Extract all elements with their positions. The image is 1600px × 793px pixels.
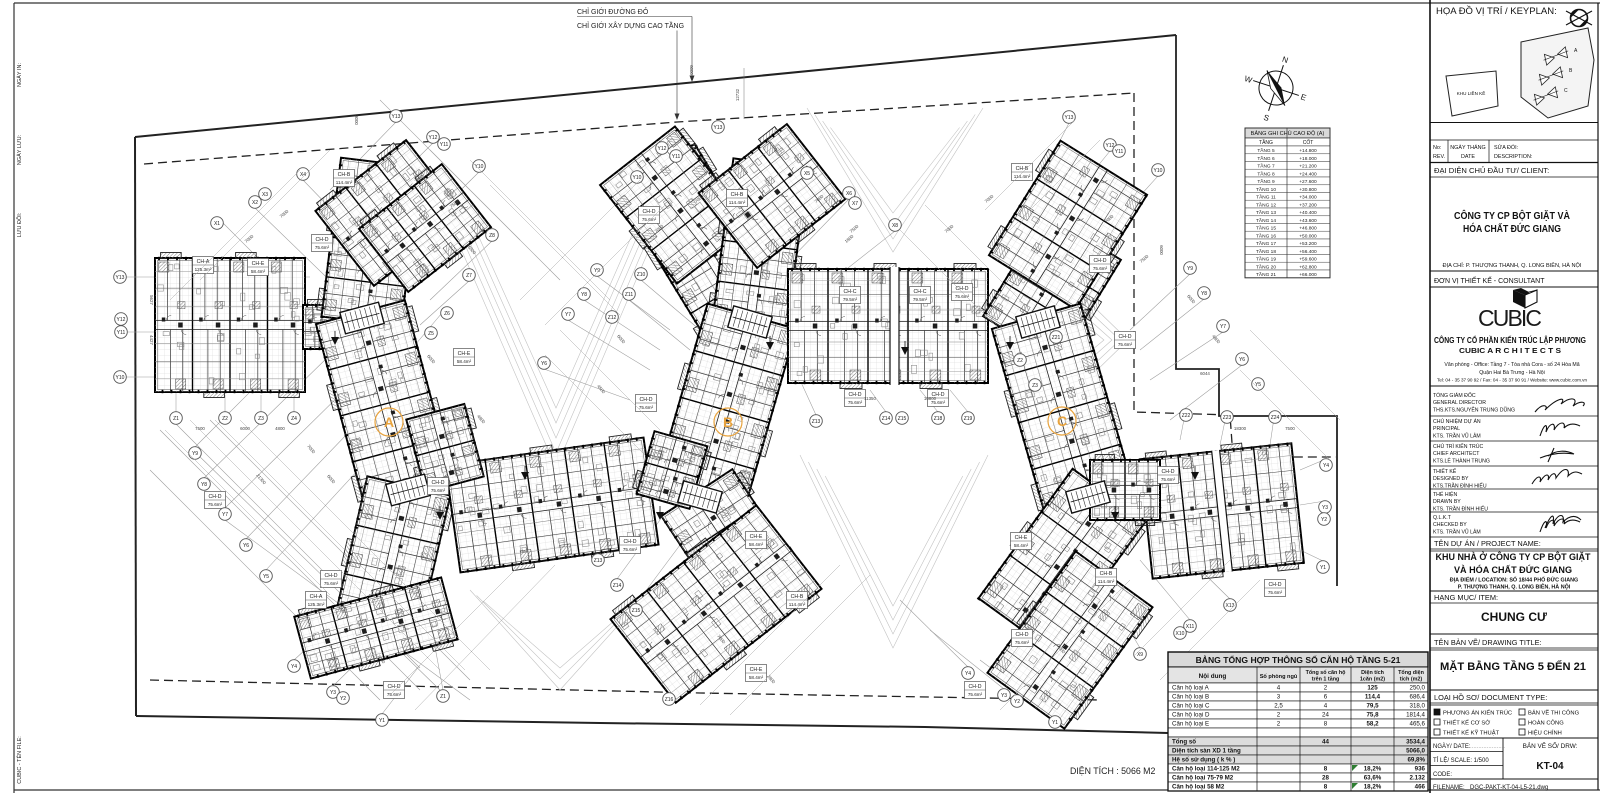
svg-text:3: 3 — [1277, 693, 1281, 700]
svg-text:X10: X10 — [1176, 631, 1185, 637]
svg-text:8: 8 — [1324, 765, 1328, 772]
svg-text:Y7: Y7 — [1220, 324, 1226, 330]
svg-text:Số phòng ngủ: Số phòng ngủ — [1260, 673, 1298, 680]
svg-text:75.6m²: 75.6m² — [642, 217, 657, 222]
svg-text:CH-D: CH-D — [956, 286, 969, 292]
svg-text:SỬA ĐỔI:: SỬA ĐỔI: — [1494, 144, 1518, 151]
svg-text:Y3: Y3 — [1001, 693, 1007, 699]
svg-text:75.6m²: 75.6m² — [623, 547, 638, 552]
svg-text:Y11: Y11 — [117, 330, 126, 336]
svg-text:Z12: Z12 — [608, 315, 617, 321]
svg-text:TẦNG 13: TẦNG 13 — [1256, 209, 1276, 216]
svg-text:HOÀN CÔNG: HOÀN CÔNG — [1528, 720, 1564, 727]
svg-text:8: 8 — [1324, 783, 1328, 790]
svg-text:Diện tích: Diện tích — [1361, 670, 1384, 676]
svg-text:Z14: Z14 — [613, 583, 622, 589]
svg-text:Z2: Z2 — [222, 416, 228, 422]
svg-text:CH-A: CH-A — [310, 594, 323, 600]
svg-text:Y1: Y1 — [1320, 565, 1326, 571]
svg-text:CH-D: CH-D — [1162, 469, 1175, 475]
svg-text:KTS. TRẦN ĐÌNH HIẾU: KTS. TRẦN ĐÌNH HIẾU — [1433, 505, 1488, 512]
svg-text:TẦNG 12: TẦNG 12 — [1256, 201, 1276, 208]
svg-text:TẦNG 7: TẦNG 7 — [1257, 163, 1275, 170]
svg-text:Y2: Y2 — [1321, 517, 1327, 523]
svg-text:TẦNG 11: TẦNG 11 — [1256, 194, 1276, 201]
svg-text:CH-D: CH-D — [1269, 582, 1282, 588]
svg-text:PHƯƠNG ÁN KIẾN TRÚC: PHƯƠNG ÁN KIẾN TRÚC — [1443, 710, 1512, 717]
svg-text:CH-D: CH-D — [1016, 632, 1029, 638]
svg-text:2: 2 — [1277, 720, 1281, 727]
svg-text:PRINCIPAL: PRINCIPAL — [1433, 426, 1460, 432]
svg-text:Y8: Y8 — [201, 482, 207, 488]
svg-text:Z19: Z19 — [964, 416, 973, 422]
svg-text:18,2%: 18,2% — [1364, 783, 1382, 790]
svg-text:Y5: Y5 — [263, 574, 269, 580]
svg-text:REV.: REV. — [1433, 154, 1445, 160]
svg-text:Y5: Y5 — [1255, 382, 1261, 388]
svg-text:CH-D: CH-D — [640, 397, 653, 403]
svg-text:58,2: 58,2 — [1366, 720, 1379, 727]
svg-text:HÓA CHẤT ĐỨC GIANG: HÓA CHẤT ĐỨC GIANG — [1463, 222, 1561, 235]
svg-text:Văn phòng - Office: Tầng 7 - T: Văn phòng - Office: Tầng 7 - Tòa nhà Cor… — [1444, 362, 1579, 368]
svg-text:114.4m²: 114.4m² — [789, 602, 806, 607]
svg-text:+50.000: +50.000 — [1299, 233, 1317, 239]
svg-text:Z2: Z2 — [1017, 358, 1023, 364]
svg-text:X5: X5 — [804, 171, 810, 177]
svg-text:+21.200: +21.200 — [1299, 164, 1317, 170]
svg-text:+56.400: +56.400 — [1299, 249, 1317, 255]
svg-text:114.4m²: 114.4m² — [1098, 579, 1115, 584]
svg-text:DESIGNED BY: DESIGNED BY — [1433, 476, 1469, 482]
svg-text:Z6: Z6 — [444, 311, 450, 317]
svg-text:ĐỊA ĐIỂM / LOCATION: SỐ 18/44: ĐỊA ĐIỂM / LOCATION: SỐ 18/44 PHỐ ĐỨC GI… — [1450, 577, 1578, 584]
svg-text:+46.800: +46.800 — [1299, 226, 1317, 232]
svg-text:Z3: Z3 — [258, 416, 264, 422]
svg-text:28: 28 — [1322, 774, 1329, 781]
svg-text:Y13: Y13 — [1065, 115, 1074, 121]
svg-text:trên 1 tầng: trên 1 tầng — [1312, 677, 1340, 683]
svg-text:DIỆN TÍCH : 5066 M2: DIỆN TÍCH : 5066 M2 — [1070, 766, 1155, 776]
svg-text:CÔNG TY CỔ PHẦN KIẾN TRÚC LẬP: CÔNG TY CỔ PHẦN KIẾN TRÚC LẬP PHƯƠNG — [1434, 334, 1586, 345]
svg-text:+14.800: +14.800 — [1299, 148, 1317, 154]
svg-text:DESCRIPTION:: DESCRIPTION: — [1494, 154, 1532, 160]
svg-text:No:: No: — [1433, 145, 1441, 151]
svg-text:CH-B: CH-B — [731, 192, 744, 198]
svg-text:CH-E: CH-E — [1015, 535, 1028, 541]
svg-text:VÀ HÓA CHẤT ĐỨC GIANG: VÀ HÓA CHẤT ĐỨC GIANG — [1454, 564, 1572, 576]
svg-text:125.3m²: 125.3m² — [195, 267, 212, 272]
svg-text:CH-E: CH-E — [750, 667, 763, 673]
svg-text:69,8%: 69,8% — [1407, 756, 1425, 763]
svg-text:75.6m²: 75.6m² — [955, 294, 970, 299]
svg-text:Tổng số: Tổng số — [1172, 738, 1196, 745]
svg-text:TÊN BẢN VẼ/ DRAWING TITLE:: TÊN BẢN VẼ/ DRAWING TITLE: — [1434, 638, 1542, 647]
svg-text:KTS.LÊ THÀNH TRUNG: KTS.LÊ THÀNH TRUNG — [1433, 456, 1490, 464]
svg-text:Căn hộ loại A: Căn hộ loại A — [1172, 684, 1210, 691]
svg-text:Z10: Z10 — [637, 272, 646, 278]
svg-text:75.6m²: 75.6m² — [968, 692, 983, 697]
svg-text:NGÀY THÁNG: NGÀY THÁNG — [1450, 144, 1485, 151]
svg-text:DRAWN BY: DRAWN BY — [1433, 499, 1461, 505]
svg-text:X2: X2 — [252, 200, 258, 206]
svg-text:CHỦ NHIỆM DỰ ÁN: CHỦ NHIỆM DỰ ÁN — [1433, 417, 1481, 425]
svg-text:CỐT: CỐT — [1303, 139, 1314, 146]
svg-text:TẦNG 17: TẦNG 17 — [1256, 240, 1276, 247]
svg-text:X6: X6 — [846, 191, 852, 197]
svg-text:BẢN VẼ THI CÔNG: BẢN VẼ THI CÔNG — [1528, 710, 1580, 717]
svg-text:3534,4: 3534,4 — [1406, 738, 1425, 745]
svg-text:5627: 5627 — [149, 295, 154, 305]
svg-text:Y4: Y4 — [291, 664, 297, 670]
svg-text:Căn hộ loại B: Căn hộ loại B — [1172, 693, 1209, 700]
svg-text:+62.800: +62.800 — [1299, 264, 1317, 270]
svg-text:CH-B: CH-B — [791, 594, 804, 600]
svg-text:75.6m²: 75.6m² — [431, 488, 446, 493]
svg-text:Y13: Y13 — [392, 114, 401, 120]
svg-text:6000: 6000 — [689, 65, 694, 75]
svg-text:Y10: Y10 — [1154, 168, 1163, 174]
svg-text:125.3m²: 125.3m² — [308, 602, 325, 607]
svg-text:Y8: Y8 — [1201, 291, 1207, 297]
svg-text:CH-D: CH-D — [209, 494, 222, 500]
svg-text:THỂ HIỆN: THỂ HIỆN — [1433, 490, 1457, 498]
svg-text:TẦNG 9: TẦNG 9 — [1257, 178, 1275, 185]
svg-text:+43.600: +43.600 — [1299, 218, 1317, 224]
svg-text:Z1: Z1 — [440, 694, 446, 700]
svg-text:Z15: Z15 — [898, 416, 907, 422]
svg-text:CH-D: CH-D — [643, 209, 656, 215]
svg-text:NGÀY IN:: NGÀY IN: — [16, 63, 23, 88]
svg-text:X1: X1 — [214, 221, 220, 227]
svg-text:Y7: Y7 — [565, 312, 571, 318]
svg-text:Y3: Y3 — [1322, 505, 1328, 511]
svg-text:+40.400: +40.400 — [1299, 210, 1317, 216]
svg-text:Căn hộ loại 75-79 M2: Căn hộ loại 75-79 M2 — [1172, 774, 1234, 781]
svg-text:Y6: Y6 — [1239, 357, 1245, 363]
svg-text:Y11: Y11 — [672, 154, 681, 160]
svg-text:Y10: Y10 — [633, 175, 642, 181]
svg-text:2,5: 2,5 — [1274, 702, 1283, 709]
svg-text:+53.200: +53.200 — [1299, 241, 1317, 247]
svg-text:Y4: Y4 — [965, 671, 971, 677]
svg-text:X9: X9 — [1137, 652, 1143, 658]
svg-text:125: 125 — [1367, 684, 1378, 691]
svg-text:79.5m²: 79.5m² — [843, 297, 858, 302]
svg-text:CH-D: CH-D — [1119, 334, 1132, 340]
svg-text:KHU NHÀ Ở CÔNG TY CP BỘT GIẶT: KHU NHÀ Ở CÔNG TY CP BỘT GIẶT — [1436, 551, 1591, 563]
svg-text:Tổng diện: Tổng diện — [1398, 669, 1424, 676]
svg-text:10800: 10800 — [924, 396, 937, 401]
svg-text:Z21: Z21 — [1052, 335, 1061, 341]
svg-text:75.6m²: 75.6m² — [639, 405, 654, 410]
svg-text:Z22: Z22 — [1182, 413, 1191, 419]
svg-text:Căn hộ loại 114-125 M2: Căn hộ loại 114-125 M2 — [1172, 765, 1240, 772]
svg-text:+30.800: +30.800 — [1299, 187, 1317, 193]
svg-text:Y8: Y8 — [581, 292, 587, 298]
svg-text:75.6m²: 75.6m² — [315, 245, 330, 250]
svg-text:Tel: 04 - 35 37 90 92 / Fax:: Tel: 04 - 35 37 90 92 / Fax: 04 - 35 37 … — [1437, 378, 1588, 383]
svg-text:X11: X11 — [1186, 624, 1195, 630]
svg-text:HIỆU CHỈNH: HIỆU CHỈNH — [1528, 729, 1562, 737]
svg-text:CH-D: CH-D — [432, 480, 445, 486]
svg-text:466: 466 — [1415, 783, 1426, 790]
svg-text:Z13: Z13 — [812, 419, 821, 425]
svg-text:CH-D: CH-D — [316, 237, 329, 243]
svg-text:HỌA ĐỒ VỊ TRÍ / KEYPLAN:: HỌA ĐỒ VỊ TRÍ / KEYPLAN: — [1436, 5, 1557, 17]
svg-text:X13: X13 — [1226, 603, 1235, 609]
svg-text:CH-D: CH-D — [969, 684, 982, 690]
svg-text:Y7: Y7 — [222, 512, 228, 518]
svg-text:MẶT BẰNG TẦNG 5 ĐẾN 21: MẶT BẰNG TẦNG 5 ĐẾN 21 — [1440, 660, 1587, 673]
svg-text:8: 8 — [1324, 720, 1328, 727]
svg-text:TÊN DỰ ÁN / PROJECT NAME:: TÊN DỰ ÁN / PROJECT NAME: — [1434, 539, 1541, 548]
svg-text:.....................: ..................... — [1470, 744, 1505, 750]
svg-text:KTS. TRẦN VŨ LÂM: KTS. TRẦN VŨ LÂM — [1433, 432, 1481, 439]
svg-text:KT-04: KT-04 — [1536, 761, 1564, 772]
svg-text:C: C — [1564, 88, 1568, 94]
svg-text:CH-E: CH-E — [750, 534, 763, 540]
svg-text:Z15: Z15 — [632, 608, 641, 614]
svg-text:CH-E: CH-E — [252, 261, 265, 267]
svg-text:4800: 4800 — [275, 426, 285, 431]
svg-text:Căn hộ loại D: Căn hộ loại D — [1172, 711, 1210, 718]
svg-text:LƯU ĐỒI:: LƯU ĐỒI: — [16, 212, 23, 237]
svg-text:CUBIC A R C H I T E C T S: CUBIC A R C H I T E C T S — [1459, 346, 1561, 355]
svg-text:465,6: 465,6 — [1410, 720, 1426, 727]
svg-text:Z14: Z14 — [882, 416, 891, 422]
svg-text:6044: 6044 — [1200, 371, 1210, 376]
svg-text:936: 936 — [1415, 765, 1426, 772]
svg-text:CH-E: CH-E — [458, 351, 471, 357]
svg-text:TẦNG 16: TẦNG 16 — [1256, 232, 1276, 239]
svg-text:Y12: Y12 — [429, 135, 438, 141]
svg-text:TỔNG GIÁM ĐỐC: TỔNG GIÁM ĐỐC — [1433, 392, 1476, 399]
svg-text:CHECKED BY: CHECKED BY — [1433, 522, 1467, 528]
svg-text:Căn hộ loại 58 M2: Căn hộ loại 58 M2 — [1172, 783, 1225, 790]
svg-text:75.6m²: 75.6m² — [848, 400, 863, 405]
svg-text:NGÀY/ DATE:: NGÀY/ DATE: — [1433, 743, 1471, 750]
svg-text:63,6%: 63,6% — [1364, 774, 1382, 781]
svg-text:58.4m²: 58.4m² — [749, 675, 764, 680]
svg-text:Y9: Y9 — [192, 451, 198, 457]
svg-text:2.132: 2.132 — [1410, 774, 1426, 781]
svg-text:CODE:: CODE: — [1433, 772, 1452, 778]
svg-text:18,2%: 18,2% — [1364, 765, 1382, 772]
svg-text:1căn (m2): 1căn (m2) — [1360, 677, 1385, 683]
svg-text:6000: 6000 — [1159, 245, 1164, 255]
svg-text:+37.200: +37.200 — [1299, 202, 1317, 208]
svg-text:Quận Hai Bà Trưng - Hà Nội: Quận Hai Bà Trưng - Hà Nội — [1479, 370, 1544, 376]
svg-text:Tổng số căn hộ: Tổng số căn hộ — [1306, 669, 1347, 676]
svg-text:CUBIC - TÊN FILE:: CUBIC - TÊN FILE: — [15, 736, 23, 784]
svg-text:Căn hộ loại C: Căn hộ loại C — [1172, 702, 1210, 709]
svg-text:KTS. TRẦN VŨ LÂM: KTS. TRẦN VŨ LÂM — [1433, 528, 1481, 535]
svg-text:Y13: Y13 — [116, 275, 125, 281]
svg-text:BẢNG TỔNG HỢP THÔNG SỐ CĂN HỘ: BẢNG TỔNG HỢP THÔNG SỐ CĂN HỘ TẦNG 5-21 — [1196, 654, 1401, 665]
svg-text:TẦNG 6: TẦNG 6 — [1257, 155, 1275, 162]
svg-text:18300: 18300 — [1234, 426, 1247, 431]
svg-text:Z18: Z18 — [934, 416, 943, 422]
svg-text:+34.000: +34.000 — [1299, 195, 1317, 201]
svg-text:ĐẠI DIỆN CHỦ ĐẦU TƯ/ CLIENT:: ĐẠI DIỆN CHỦ ĐẦU TƯ/ CLIENT: — [1434, 165, 1549, 175]
svg-text:75.6m²: 75.6m² — [1093, 266, 1108, 271]
svg-text:KTS.TRẦN ĐÌNH HIẾU: KTS.TRẦN ĐÌNH HIẾU — [1433, 482, 1487, 489]
svg-text:Y11: Y11 — [440, 142, 449, 148]
svg-text:TẦNG 8: TẦNG 8 — [1257, 170, 1275, 177]
svg-text:Y12: Y12 — [658, 146, 667, 152]
svg-text:X3: X3 — [262, 192, 268, 198]
svg-text:Z3: Z3 — [1032, 383, 1038, 389]
svg-text:NGÀY LƯU:: NGÀY LƯU: — [16, 134, 23, 165]
svg-text:CH-B: CH-B — [1016, 166, 1029, 172]
svg-text:1814,4: 1814,4 — [1406, 711, 1425, 718]
svg-text:CH-D: CH-D — [388, 684, 401, 690]
svg-text:Z5: Z5 — [428, 331, 434, 337]
svg-text:58.4m²: 58.4m² — [251, 269, 266, 274]
svg-text:Hệ số sử dụng ( k % ): Hệ số sử dụng ( k % ) — [1172, 756, 1235, 763]
svg-text:TẦNG: TẦNG — [1259, 139, 1273, 146]
svg-text:+59.600: +59.600 — [1299, 257, 1317, 263]
svg-text:CH-D: CH-D — [1094, 258, 1107, 264]
svg-text:Y12: Y12 — [117, 317, 126, 323]
svg-text:Y1: Y1 — [379, 718, 385, 724]
svg-text:Nội dung: Nội dung — [1199, 673, 1227, 680]
svg-text:CHIEF ARCHITECT: CHIEF ARCHITECT — [1433, 451, 1480, 457]
svg-text:Z11: Z11 — [625, 292, 633, 298]
svg-text:KHU LIỀN KỀ: KHU LIỀN KỀ — [1457, 90, 1486, 96]
svg-text:Y4: Y4 — [1323, 463, 1329, 469]
svg-text:tích (m2): tích (m2) — [1400, 677, 1423, 683]
svg-text:CUBIC: CUBIC — [1478, 305, 1544, 331]
svg-text:CHUNG CƯ: CHUNG CƯ — [1481, 610, 1547, 624]
svg-text:CH-C: CH-C — [844, 289, 857, 295]
svg-text:TẦNG 19: TẦNG 19 — [1256, 256, 1276, 263]
svg-text:114.4m²: 114.4m² — [729, 200, 746, 205]
svg-text:Y13: Y13 — [714, 125, 723, 131]
svg-text:Căn hộ loại E: Căn hộ loại E — [1172, 720, 1209, 727]
svg-text:+24.400: +24.400 — [1299, 171, 1317, 177]
svg-text:THS.KTS.NGUYỄN TRUNG DŨNG: THS.KTS.NGUYỄN TRUNG DŨNG — [1433, 406, 1515, 413]
svg-text:11350: 11350 — [864, 396, 876, 401]
svg-text:4427: 4427 — [149, 335, 154, 345]
svg-text:THIẾT KẾ: THIẾT KẾ — [1433, 468, 1457, 475]
svg-text:Z24: Z24 — [1271, 415, 1280, 421]
svg-text:114,4: 114,4 — [1365, 693, 1381, 700]
svg-text:Y6: Y6 — [541, 361, 547, 367]
svg-text:75.6m²: 75.6m² — [324, 581, 339, 586]
svg-text:TẦNG 20: TẦNG 20 — [1256, 263, 1276, 270]
svg-text:CHỦ TRÌ KIẾN TRÚC: CHỦ TRÌ KIẾN TRÚC — [1433, 443, 1483, 450]
svg-text:TẦNG 10: TẦNG 10 — [1256, 186, 1276, 193]
svg-text:58.4m²: 58.4m² — [457, 359, 472, 364]
svg-text:58.4m²: 58.4m² — [749, 542, 764, 547]
svg-text:LOẠI HỒ SƠ/ DOCUMENT TYPE:: LOẠI HỒ SƠ/ DOCUMENT TYPE: — [1434, 692, 1547, 702]
svg-text:3000: 3000 — [354, 115, 359, 125]
svg-text:TẦNG 21: TẦNG 21 — [1256, 271, 1276, 278]
svg-text:318,0: 318,0 — [1410, 702, 1426, 709]
svg-text:BẢNG GHI CHÚ CAO ĐỘ (A): BẢNG GHI CHÚ CAO ĐỘ (A) — [1251, 130, 1325, 137]
svg-text:DGC-PAKT-KT-04-L5-21.dwg: DGC-PAKT-KT-04-L5-21.dwg — [1470, 785, 1548, 791]
svg-text:12732: 12732 — [735, 88, 740, 101]
svg-text:CH-B: CH-B — [338, 172, 351, 178]
svg-text:75,8: 75,8 — [1366, 711, 1379, 718]
svg-text:24: 24 — [1322, 711, 1329, 718]
svg-text:250,0: 250,0 — [1410, 684, 1426, 691]
svg-text:X7: X7 — [852, 201, 858, 207]
svg-text:5066,0: 5066,0 — [1406, 747, 1425, 754]
svg-text:X8: X8 — [892, 223, 898, 229]
svg-text:75.6m²: 75.6m² — [1268, 590, 1283, 595]
svg-text:Diện tích sàn XD 1 tầng: Diện tích sàn XD 1 tầng — [1172, 747, 1241, 754]
svg-text:114.4m²: 114.4m² — [1014, 174, 1031, 179]
svg-text:75.6m²: 75.6m² — [387, 692, 402, 697]
svg-text:ĐỊA CHỈ: P. THƯỢNG THANH, Q. L: ĐỊA CHỈ: P. THƯỢNG THANH, Q. LONG BIÊN, … — [1443, 261, 1582, 269]
svg-text:+18.000: +18.000 — [1299, 156, 1317, 162]
svg-text:7500: 7500 — [1285, 426, 1295, 431]
svg-text:CH-D: CH-D — [624, 539, 637, 545]
svg-text:+27.600: +27.600 — [1299, 179, 1317, 185]
svg-text:A: A — [384, 414, 394, 430]
svg-text:GENERAL DIRECTOR: GENERAL DIRECTOR — [1433, 400, 1486, 406]
svg-text:Y1: Y1 — [1052, 720, 1058, 726]
svg-text:Y9: Y9 — [1187, 266, 1193, 272]
svg-text:TẦNG 18: TẦNG 18 — [1256, 248, 1276, 255]
svg-text:75.6m²: 75.6m² — [1118, 342, 1133, 347]
svg-text:79,5: 79,5 — [1366, 702, 1379, 709]
svg-text:4: 4 — [1324, 702, 1328, 709]
svg-text:Y2: Y2 — [340, 696, 346, 702]
svg-text:2: 2 — [1277, 711, 1281, 718]
svg-text:TẦNG 14: TẦNG 14 — [1256, 217, 1276, 224]
svg-text:THIẾT KẾ KỸ THUẬT: THIẾT KẾ KỸ THUẬT — [1443, 730, 1500, 737]
svg-text:6: 6 — [1324, 693, 1328, 700]
svg-text:TẦNG 15: TẦNG 15 — [1256, 225, 1276, 232]
svg-text:Z1: Z1 — [173, 416, 179, 422]
svg-text:B: B — [723, 414, 733, 430]
svg-text:79.5m²: 79.5m² — [913, 297, 928, 302]
svg-text:75.6m²: 75.6m² — [1015, 640, 1030, 645]
svg-text:FILENAME:: FILENAME: — [1433, 785, 1465, 791]
svg-text:Z8: Z8 — [489, 233, 495, 239]
svg-text:75.6m²: 75.6m² — [1161, 477, 1176, 482]
svg-text:2: 2 — [1324, 684, 1328, 691]
svg-text:44: 44 — [1322, 738, 1329, 745]
svg-text:CH-C: CH-C — [914, 289, 927, 295]
svg-text:Z13: Z13 — [594, 558, 603, 564]
svg-text:Y6: Y6 — [243, 543, 249, 549]
svg-text:P. THƯỢNG THANH, Q. LONG BIÊN,: P. THƯỢNG THANH, Q. LONG BIÊN, HÀ NỘI — [1458, 583, 1571, 591]
svg-text:THIẾT KẾ CƠ SỞ: THIẾT KẾ CƠ SỞ — [1443, 720, 1490, 727]
svg-text:CÔNG TY CP BỘT GIẶT VÀ: CÔNG TY CP BỘT GIẶT VÀ — [1454, 209, 1570, 222]
svg-text:58.4m²: 58.4m² — [1014, 543, 1029, 548]
svg-text:Z16: Z16 — [665, 697, 674, 703]
svg-text:TẦNG 5: TẦNG 5 — [1257, 147, 1275, 154]
svg-text:TỈ LỆ/ SCALE: 1/500: TỈ LỆ/ SCALE: 1/500 — [1433, 756, 1489, 764]
svg-text:DATE: DATE — [1461, 154, 1475, 160]
svg-text:Y11: Y11 — [1115, 149, 1124, 155]
svg-text:114.4m²: 114.4m² — [336, 180, 353, 185]
svg-text:CHỈ GIỚI ĐƯỜNG ĐỎ: CHỈ GIỚI ĐƯỜNG ĐỎ — [577, 7, 649, 16]
svg-text:HẠNG MỤC/ ITEM:: HẠNG MỤC/ ITEM: — [1434, 593, 1498, 602]
svg-text:686,4: 686,4 — [1410, 693, 1426, 700]
svg-text:75.6m²: 75.6m² — [208, 502, 223, 507]
svg-text:6000: 6000 — [240, 426, 250, 431]
svg-text:Z7: Z7 — [466, 273, 472, 279]
svg-text:Y2: Y2 — [1014, 699, 1020, 705]
svg-text:CH-D: CH-D — [325, 573, 338, 579]
svg-text:Z4: Z4 — [291, 416, 297, 422]
svg-text:CH-B: CH-B — [1100, 571, 1113, 577]
